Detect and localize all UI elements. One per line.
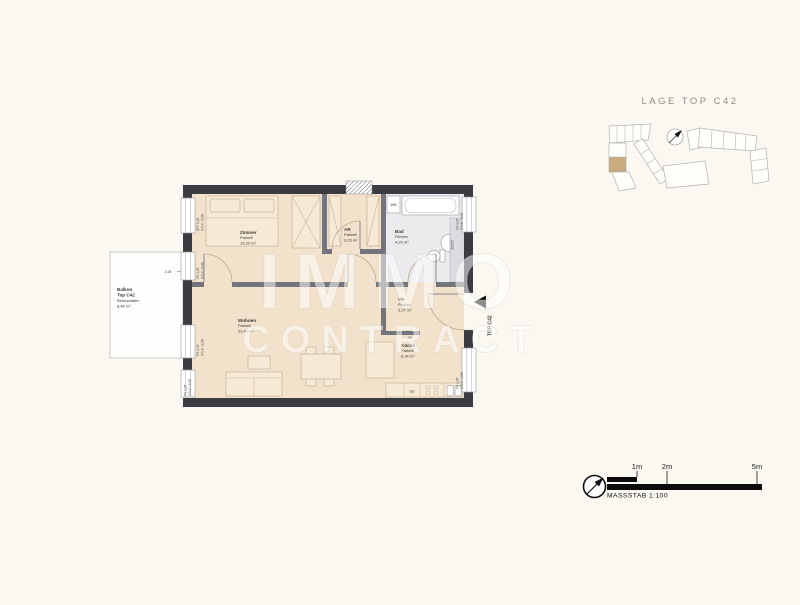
window-label: STLK +2,08	[188, 379, 192, 396]
scale-bar-upper	[607, 477, 637, 482]
watermark-line2: CONTRACT	[242, 319, 543, 361]
scale-tick-label-1m: 1m	[632, 462, 642, 471]
watermark-line1: IMMO	[259, 237, 527, 325]
window	[462, 197, 476, 232]
window	[181, 325, 195, 358]
balcony-area: 8,46 m²	[117, 304, 131, 309]
wall-right-segment	[464, 194, 473, 197]
balcony: Balkon Top C42 Betonplatten 8,46 m² -0,0…	[110, 252, 186, 358]
building-right-row	[698, 128, 757, 151]
window-label: STLK +2,08	[200, 339, 204, 356]
dishwasher-label: GS	[410, 390, 416, 394]
site-plan-title: LAGE TOP C42	[641, 96, 738, 107]
level-marker-label: -0,06	[164, 270, 171, 274]
shaft-hatched	[346, 181, 372, 194]
floorplan-canvas: Balkon Top C42 Betonplatten 8,46 m² -0,0…	[0, 0, 800, 600]
building-left-row	[609, 124, 651, 143]
wall-top	[183, 185, 473, 194]
scale-bar-lower	[607, 484, 762, 490]
wall-left-segment	[183, 194, 192, 198]
building-right-column	[750, 148, 769, 184]
wall-segment	[192, 282, 204, 287]
window	[181, 252, 195, 280]
window-label: STLK +2,08	[460, 213, 464, 230]
pillow-left	[210, 199, 240, 212]
highlighted-unit	[610, 158, 626, 172]
balcony-unit: Top C42	[117, 293, 135, 298]
scale-caption: MASSSTAB 1:100	[607, 493, 668, 500]
scale-tick-label-2m: 2m	[662, 462, 672, 471]
bathtub	[402, 196, 459, 215]
scale-bar: 1m 2m 5m MASSSTAB 1:100	[584, 462, 763, 500]
balcony-floor: Betonplatten	[117, 298, 139, 303]
window	[181, 198, 195, 233]
chair	[324, 379, 334, 386]
building-bottom	[663, 161, 709, 188]
balcony-name: Balkon	[117, 287, 133, 292]
wall-right-segment	[464, 392, 473, 398]
pillow-right	[244, 199, 274, 212]
sink-basin	[447, 386, 454, 397]
site-plan: LAGE TOP C42	[609, 96, 769, 191]
wall-bottom	[183, 398, 473, 407]
washing-machine-label: WM	[390, 203, 396, 207]
scale-tick-label-5m: 5m	[752, 462, 762, 471]
building-left-corner	[612, 172, 636, 191]
room-zimmer-area: 13,20 m²	[240, 240, 256, 245]
wall-left-segment	[183, 358, 192, 370]
chair	[306, 379, 316, 386]
window-label: STLK +0,40	[200, 262, 204, 279]
window-label: STLK +2,08	[460, 372, 464, 389]
wall-left-segment	[183, 280, 192, 325]
watermark: IMMO CONTRACT	[242, 237, 543, 361]
wall-left-segment	[183, 233, 192, 252]
window-label: STLK +2,08	[200, 214, 204, 231]
